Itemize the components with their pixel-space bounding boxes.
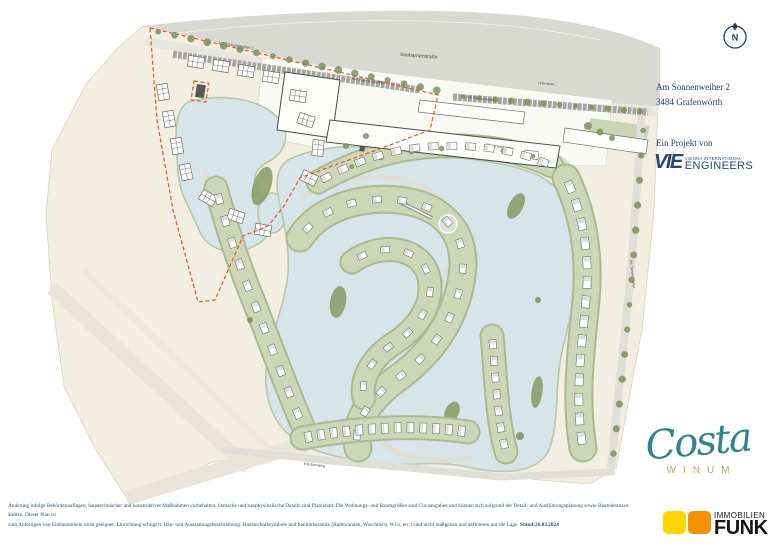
- tree-icon: [461, 94, 466, 99]
- house: [459, 264, 466, 273]
- tree-icon: [286, 56, 293, 63]
- house: [492, 373, 500, 382]
- tree-icon: [616, 400, 623, 407]
- house: [409, 144, 420, 152]
- funk-yellow-square-icon: [663, 511, 686, 534]
- tree-icon: [605, 106, 611, 112]
- brand-name: Costa: [629, 416, 768, 468]
- house: [394, 423, 401, 433]
- house: [380, 246, 389, 253]
- broker-name-bottom: FUNK: [714, 520, 768, 537]
- address-city: 3484 Grafenwörth: [656, 95, 730, 110]
- house: [490, 356, 498, 365]
- tree-icon: [636, 177, 643, 184]
- tree-icon: [634, 201, 641, 208]
- house: [575, 413, 584, 426]
- tree-icon: [253, 49, 260, 56]
- tree-icon: [236, 46, 243, 53]
- plan-date: Stand:26.02.2024: [520, 522, 559, 528]
- house: [577, 334, 586, 347]
- house: [397, 197, 407, 205]
- tree-icon: [524, 99, 530, 105]
- compass-north: N: [724, 23, 746, 49]
- house: [426, 287, 433, 297]
- tree-icon: [619, 376, 626, 383]
- tree-icon: [628, 277, 634, 283]
- house: [583, 257, 592, 269]
- disclaimer-line2: zum Anfertigen von Einbaumöbeln nicht ge…: [8, 521, 644, 530]
- tree-icon: [187, 35, 194, 42]
- house: [407, 423, 414, 433]
- tree-icon: [632, 226, 639, 233]
- compass-letter: N: [732, 33, 739, 43]
- tree-icon: [540, 100, 546, 106]
- address-street: Am Sonnenweiher 2: [656, 80, 730, 95]
- disclaimer-line1: Änderung infolge Behördenauflagen, haust…: [8, 502, 644, 521]
- tree-icon: [401, 80, 407, 86]
- house: [493, 390, 501, 400]
- house: [420, 423, 427, 433]
- brochure-page: Seebarnerstraße Am Sonnenweiher 2 Am Son…: [0, 0, 770, 545]
- house: [576, 354, 585, 367]
- house: [304, 431, 313, 442]
- house: [330, 427, 338, 438]
- tree-icon: [171, 32, 178, 39]
- house: [342, 426, 350, 437]
- tree-icon: [589, 105, 594, 110]
- immobilien-funk-logo: IMMOBILIEN FUNK: [663, 511, 768, 537]
- house: [447, 142, 457, 149]
- tree-icon: [349, 164, 354, 169]
- tree-icon: [627, 302, 633, 308]
- tree-icon: [508, 97, 514, 103]
- house: [355, 425, 363, 436]
- tree-icon: [640, 128, 645, 133]
- funk-orange-square-icon: [688, 511, 711, 534]
- tree-icon: [368, 73, 375, 80]
- vie-engineers-logo: VIE VIENNA INTERNATIONAL ENGINEERS: [654, 152, 753, 172]
- project-address: Am Sonnenweiher 2 3484 Grafenwörth: [656, 80, 730, 110]
- utility-block: [359, 146, 365, 152]
- tree-icon: [270, 53, 276, 59]
- tree-icon: [351, 70, 358, 77]
- tree-icon: [220, 42, 228, 50]
- tree-icon: [573, 104, 578, 109]
- house: [575, 393, 583, 405]
- tree-icon: [621, 107, 627, 113]
- tree-icon: [624, 326, 630, 332]
- house: [581, 296, 590, 309]
- house: [484, 144, 495, 152]
- vie-logo-line2: ENGINEERS: [685, 161, 753, 172]
- tree-icon: [318, 63, 326, 71]
- tree-icon: [638, 152, 644, 158]
- house: [457, 426, 465, 437]
- tree-icon: [302, 60, 309, 67]
- tree-icon: [637, 108, 643, 114]
- tree-icon: [476, 95, 481, 100]
- house: [489, 340, 497, 350]
- tree-icon: [557, 102, 563, 108]
- tree-icon: [630, 251, 637, 258]
- house: [580, 237, 589, 250]
- house: [579, 315, 588, 328]
- house: [381, 423, 388, 433]
- tree-icon: [155, 29, 161, 35]
- house: [575, 374, 583, 386]
- project-intro-label: Ein Projekt von: [656, 138, 713, 148]
- house: [428, 143, 438, 151]
- tree-icon: [203, 38, 211, 46]
- house: [577, 432, 587, 445]
- vie-logo-acronym: VIE: [654, 152, 682, 172]
- house: [465, 143, 475, 151]
- tree-icon: [492, 96, 498, 102]
- house: [583, 276, 591, 288]
- tree-icon: [613, 425, 620, 432]
- tree-icon: [335, 66, 343, 74]
- tree-icon: [439, 146, 445, 152]
- house: [372, 196, 381, 203]
- house: [368, 424, 376, 434]
- costa-winum-logo: Costa WINUM: [630, 422, 766, 476]
- road-label-kirchenweg: Kirchenweg: [304, 461, 325, 468]
- tree-icon: [621, 351, 628, 358]
- house: [494, 406, 502, 416]
- house: [432, 423, 440, 433]
- house: [317, 429, 325, 440]
- disclaimer: Änderung infolge Behördenauflagen, haust…: [8, 502, 644, 530]
- tree-icon: [417, 83, 424, 90]
- tree-icon: [610, 450, 616, 456]
- tree-icon: [433, 86, 441, 94]
- house: [497, 422, 505, 432]
- tree-icon: [385, 77, 391, 83]
- house: [360, 381, 367, 391]
- house: [445, 424, 453, 435]
